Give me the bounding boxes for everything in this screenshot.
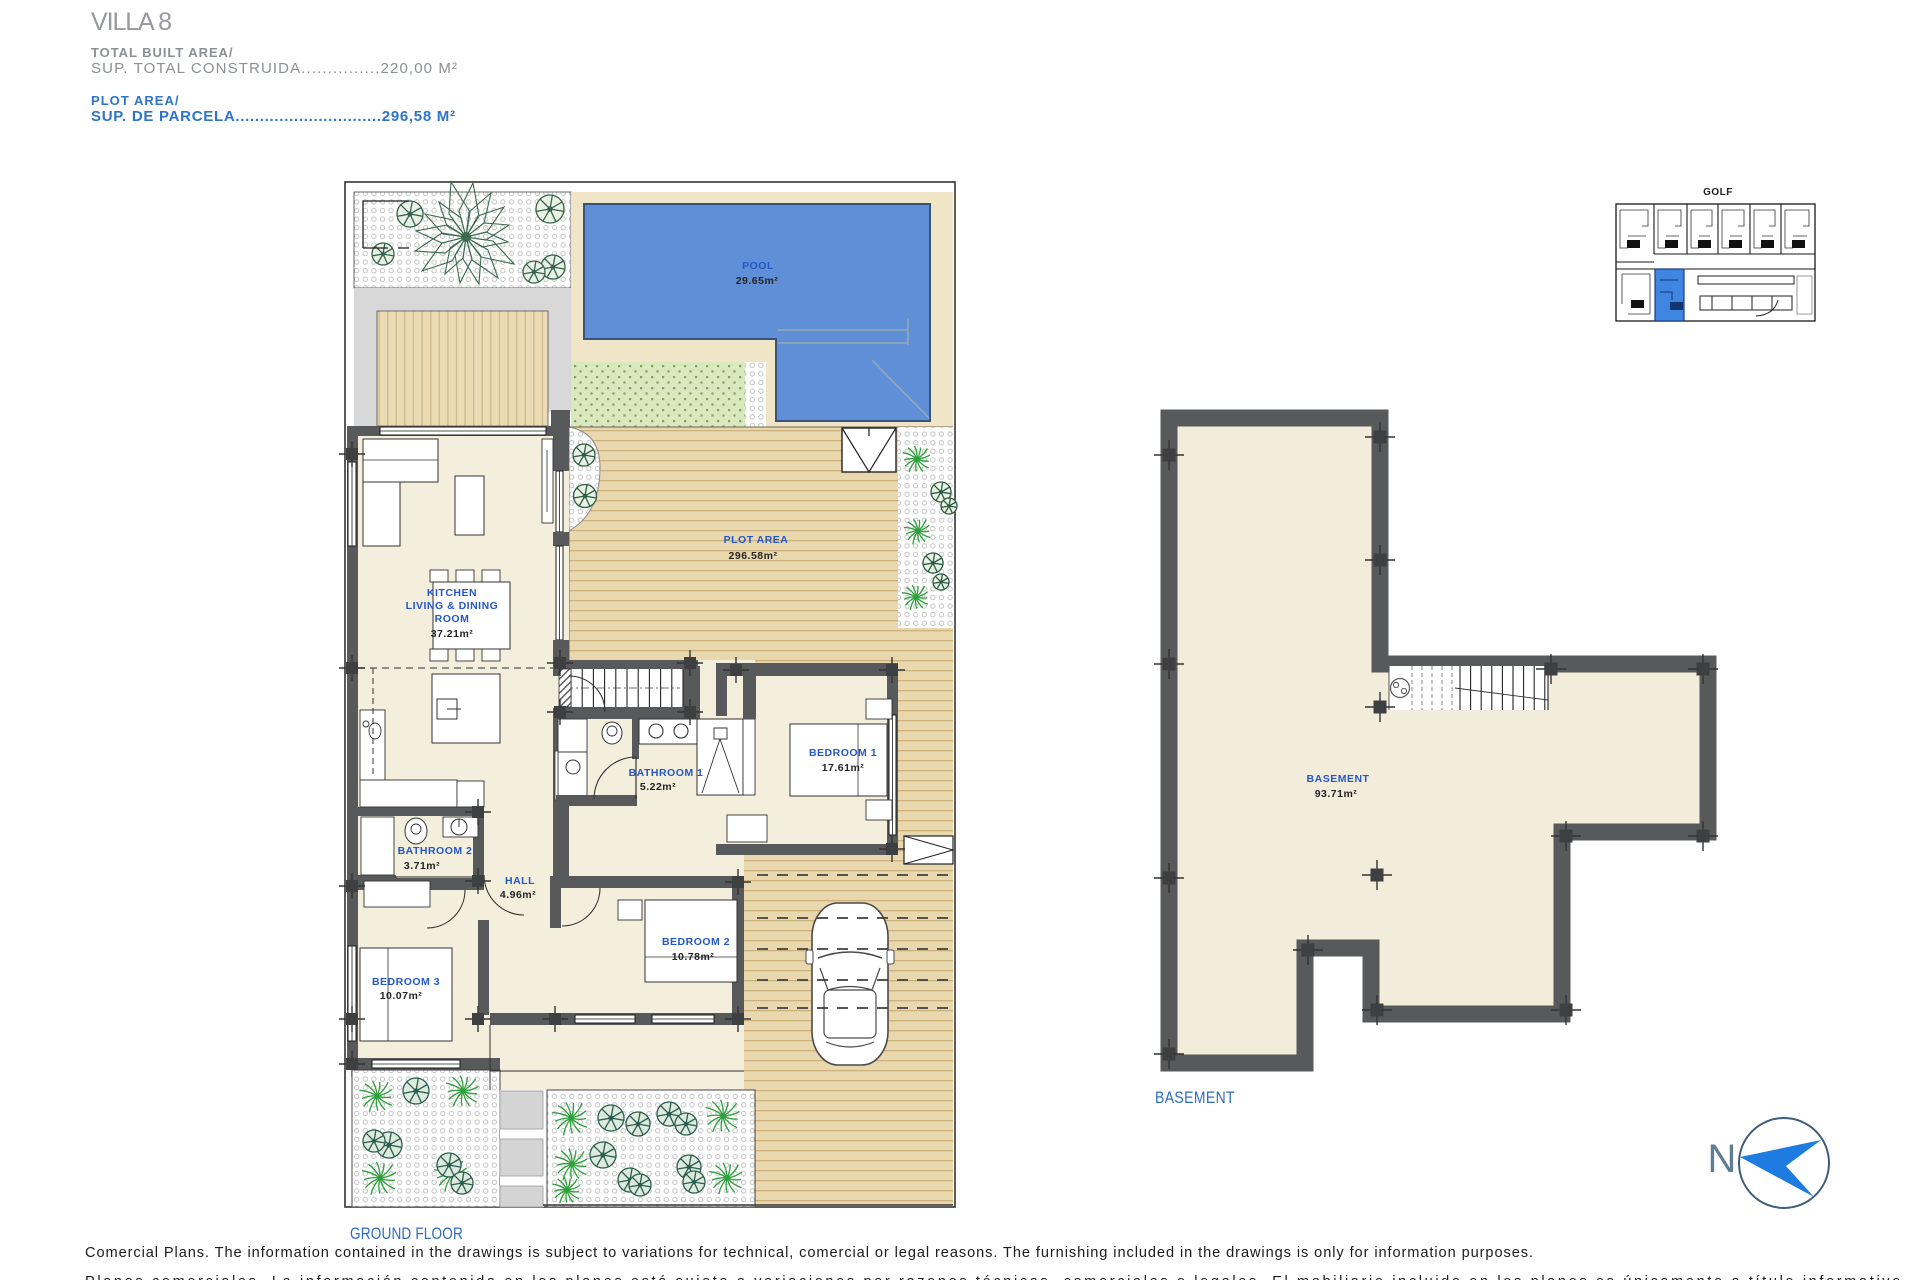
svg-text:BEDROOM 2: BEDROOM 2	[662, 936, 730, 948]
svg-text:ROOM: ROOM	[435, 613, 470, 625]
svg-text:Planos comerciales. La informa: Planos comerciales. La información conte…	[85, 1274, 1907, 1280]
svg-text:5.22m²: 5.22m²	[640, 781, 676, 793]
svg-text:PLOT AREA: PLOT AREA	[724, 534, 789, 546]
svg-text:3.71m²: 3.71m²	[404, 860, 440, 872]
svg-text:GOLF: GOLF	[1703, 187, 1733, 198]
svg-text:37.21m²: 37.21m²	[431, 628, 474, 640]
svg-text:17.61m²: 17.61m²	[822, 762, 865, 774]
svg-text:BASEMENT: BASEMENT	[1155, 1088, 1235, 1107]
svg-text:BEDROOM 1: BEDROOM 1	[809, 747, 877, 759]
svg-text:TOTAL BUILT AREA/: TOTAL BUILT AREA/	[91, 45, 233, 60]
svg-text:BATHROOM 2: BATHROOM 2	[398, 845, 473, 857]
svg-text:PLOT AREA/: PLOT AREA/	[91, 93, 179, 108]
svg-text:BATHROOM 1: BATHROOM 1	[629, 767, 704, 779]
svg-text:BASEMENT: BASEMENT	[1307, 773, 1370, 785]
svg-text:LIVING & DINING: LIVING & DINING	[406, 600, 499, 612]
svg-text:4.96m²: 4.96m²	[500, 889, 536, 901]
svg-text:BEDROOM 3: BEDROOM 3	[372, 976, 440, 988]
svg-text:HALL: HALL	[505, 875, 535, 887]
svg-text:POOL: POOL	[742, 260, 774, 272]
svg-text:10.78m²: 10.78m²	[672, 951, 715, 963]
svg-text:10.07m²: 10.07m²	[380, 990, 423, 1002]
svg-text:VILLA 8: VILLA 8	[91, 8, 175, 36]
svg-text:Comercial Plans. The informati: Comercial Plans. The information contain…	[85, 1245, 1533, 1261]
svg-text:N: N	[1708, 1137, 1737, 1181]
svg-text:296.58m²: 296.58m²	[729, 550, 778, 562]
svg-text:KITCHEN: KITCHEN	[427, 587, 477, 599]
svg-text:SUP. TOTAL CONSTRUIDA.........: SUP. TOTAL CONSTRUIDA...............220,…	[91, 60, 457, 77]
svg-text:93.71m²: 93.71m²	[1315, 788, 1358, 800]
svg-text:GROUND FLOOR: GROUND FLOOR	[350, 1224, 463, 1243]
svg-text:SUP. DE PARCELA...............: SUP. DE PARCELA.........................…	[91, 108, 455, 125]
svg-text:29.65m²: 29.65m²	[736, 275, 779, 287]
